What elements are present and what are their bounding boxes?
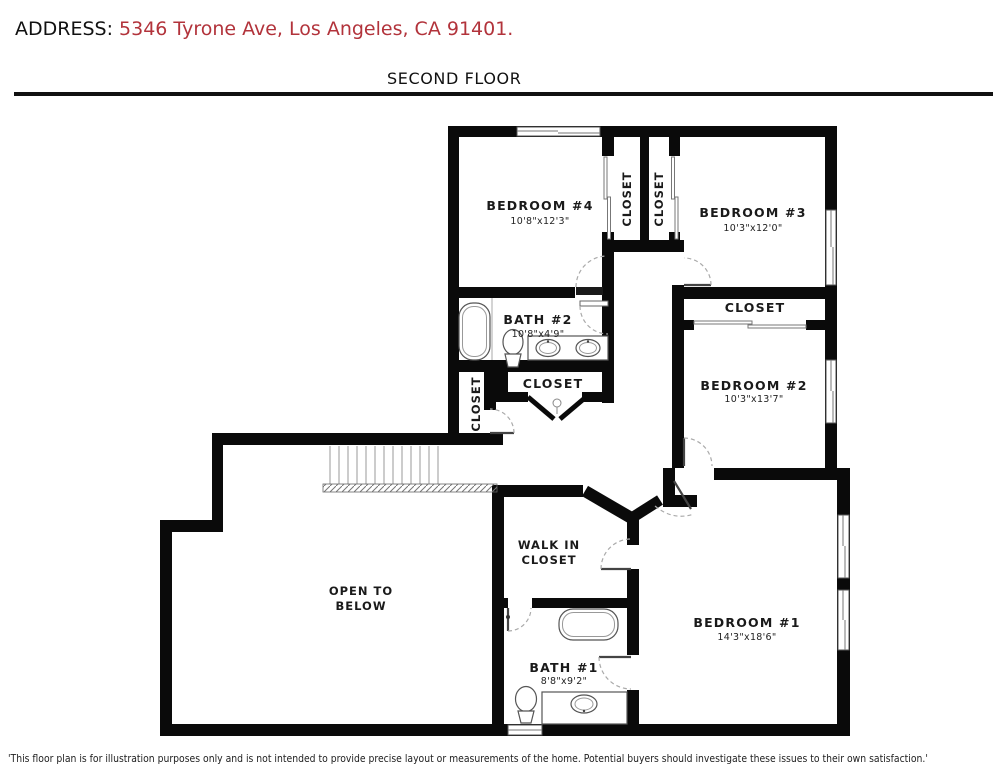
- sink-vanity-icon: [542, 692, 627, 724]
- door-bath1-icon: [599, 657, 631, 689]
- staircase: [323, 446, 497, 492]
- room-label-closet-bedroom3: CLOSET: [652, 171, 666, 226]
- sliding-door-closet-bedroom4-icon: [604, 157, 611, 239]
- room-dims-bath-1: 8'8"x9'2": [541, 676, 587, 687]
- room-dims-bedroom-2: 10'3"x13'7": [724, 394, 783, 405]
- door-walk-in-closet-icon: [601, 539, 631, 569]
- room-dims-bedroom-1: 14'3"x18'6": [717, 632, 776, 643]
- room-label-closet-bedroom2: CLOSET: [725, 300, 786, 315]
- door-bedroom3-icon: [684, 258, 711, 285]
- toilet-icon: [516, 687, 537, 724]
- stair-landing-edge: [323, 484, 497, 492]
- room-label-bedroom-3: BEDROOM #3: [699, 205, 806, 220]
- window-bedroom2-icon: [826, 360, 836, 423]
- fixture-dot: [506, 615, 510, 619]
- room-label-closet-hall: CLOSET: [523, 376, 584, 391]
- room-dims-bedroom-3: 10'3"x12'0": [723, 223, 782, 234]
- room-label-bedroom-1: BEDROOM #1: [693, 615, 800, 630]
- room-label-open-to-below-line2: BELOW: [336, 599, 387, 613]
- disclaimer-text: 'This floor plan is for illustration pur…: [8, 753, 928, 765]
- sliding-door-closet-bedroom3-icon: [672, 157, 679, 239]
- room-label-open-to-below-line1: OPEN TO: [329, 584, 393, 598]
- door-bedroom2-icon: [684, 438, 712, 466]
- bathtub-icon: [459, 303, 490, 360]
- room-label-closet-hall-small: CLOSET: [469, 376, 483, 431]
- floor-plan-page: ADDRESS: 5346 Tyrone Ave, Los Angeles, C…: [0, 0, 1008, 778]
- room-label-bedroom-2: BEDROOM #2: [700, 378, 807, 393]
- sliding-door-closet-bedroom2-icon: [694, 321, 806, 328]
- room-label-walk-in-closet-line2: CLOSET: [521, 553, 576, 567]
- window-bedroom1-upper-icon: [838, 515, 849, 578]
- bifold-door-hall-closet-icon: [528, 397, 586, 419]
- door-bath1-inner-icon: [508, 608, 531, 631]
- bathtub-icon: [559, 609, 618, 640]
- room-label-bath-1: BATH #1: [529, 660, 598, 675]
- room-label-bath-2: BATH #2: [503, 312, 572, 327]
- room-label-closet-bedroom4: CLOSET: [620, 171, 634, 226]
- room-dims-bedroom-4: 10'8"x12'3": [510, 216, 569, 227]
- window-bedroom3-icon: [826, 210, 836, 285]
- window-bedroom4-icon: [517, 127, 600, 136]
- window-bedroom1-lower-icon: [838, 590, 849, 650]
- room-label-bedroom-4: BEDROOM #4: [486, 198, 593, 213]
- room-label-walk-in-closet-line1: WALK IN: [518, 538, 580, 552]
- door-hall-closet-icon: [490, 409, 514, 433]
- window-bath1-icon: [508, 725, 542, 735]
- floor-plan-drawing: BEDROOM #4 10'8"x12'3" BEDROOM #3 10'3"x…: [0, 0, 1008, 778]
- room-dims-bath-2: 10'8"x4'9": [512, 329, 565, 340]
